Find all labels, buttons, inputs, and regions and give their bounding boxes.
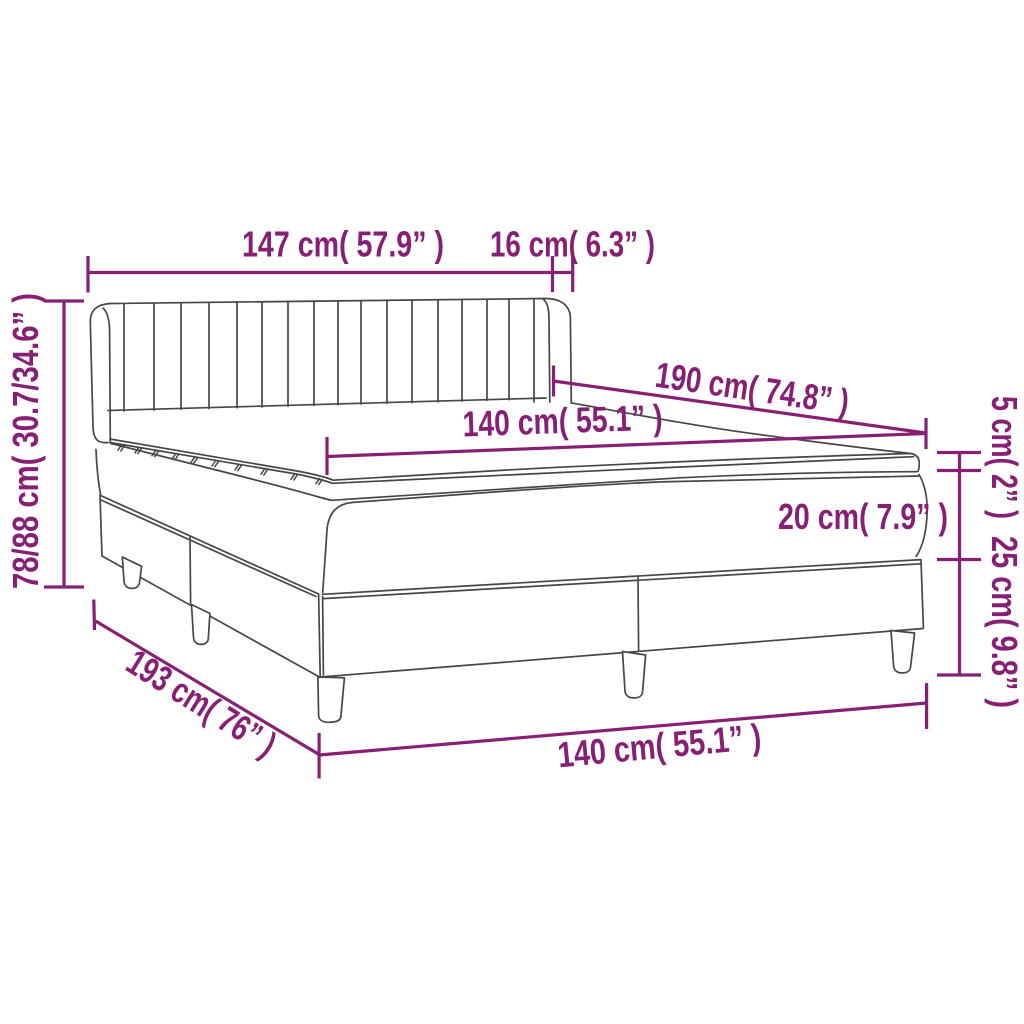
svg-text:5 cm( 2” ): 5 cm( 2” ) [984,396,1024,519]
svg-text:147 cm( 57.9” ): 147 cm( 57.9” ) [242,224,444,265]
svg-text:78/88 cm( 30.7/34.6” ): 78/88 cm( 30.7/34.6” ) [5,293,46,589]
svg-text:20 cm( 7.9” ): 20 cm( 7.9” ) [778,496,948,537]
svg-text:25 cm( 9.8” ): 25 cm( 9.8” ) [984,536,1024,708]
svg-text:16 cm( 6.3” ): 16 cm( 6.3” ) [490,224,655,265]
svg-text:140 cm( 55.1” ): 140 cm( 55.1” ) [462,397,663,445]
